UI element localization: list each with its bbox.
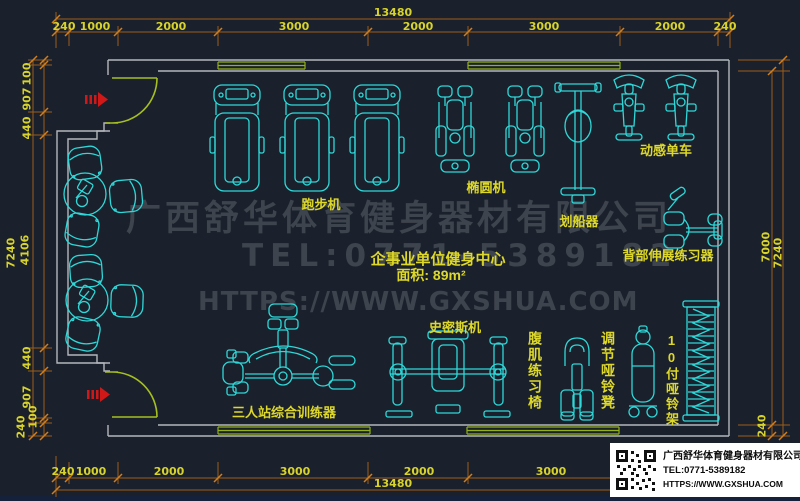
label-spin-bike: 动感单车	[640, 140, 692, 159]
dim-left-seg-6: 100	[27, 406, 40, 429]
title-block: 广西舒华体育健身器材有限公司 TEL:0771-5389182 HTTPS://…	[610, 443, 800, 497]
label-smith-machine: 史密斯机	[429, 317, 481, 336]
dim-bottom-seg-1: 1000	[76, 465, 107, 478]
multi-station-trainer	[223, 304, 355, 395]
dim-left-seg-7: 240	[15, 416, 28, 439]
dim-bottom-seg-0: 240	[52, 465, 75, 478]
dim-bottom-seg-2: 2000	[154, 465, 185, 478]
label-adj-dumbbell-bench: 调节哑铃凳	[598, 331, 618, 411]
titleblock-tel: TEL:0771-5389182	[663, 464, 800, 478]
rowing-machine	[555, 83, 601, 203]
label-rower: 划船器	[559, 211, 598, 230]
label-multi-station: 三人站综合训练器	[232, 402, 336, 421]
dim-top-seg-2: 2000	[156, 20, 187, 33]
spin-bikes	[614, 75, 696, 140]
label-dumbbell-rack: 10付哑铃架	[662, 333, 681, 427]
cad-canvas[interactable]: 广西舒华体育健身器材有限公司 TEL:0771-5389182 HTTPS://…	[0, 0, 800, 501]
ellipticals	[436, 86, 544, 172]
dim-left-seg-0: 100	[21, 63, 34, 86]
titleblock-company: 广西舒华体育健身器材有限公司	[663, 450, 800, 465]
dim-bottom-seg-3: 3000	[280, 465, 311, 478]
dim-top-seg-4: 2000	[403, 20, 434, 33]
dim-left-seg-3: 4106	[19, 235, 32, 266]
lounge-chairs-tables	[63, 145, 143, 353]
dim-top-seg-6: 2000	[655, 20, 686, 33]
smith-machine	[386, 331, 510, 417]
titleblock-website: HTTPS://WWW.GXSHUA.COM	[663, 478, 800, 490]
ab-bench	[561, 338, 593, 420]
adjustable-dumbbell-bench	[629, 326, 657, 417]
label-treadmill: 跑步机	[301, 194, 340, 213]
room-area: 面积: 89m²	[396, 265, 465, 285]
dim-left-seg-1: 907	[21, 88, 34, 111]
dim-left-total: 7240	[5, 238, 18, 269]
dim-top-seg-7: 240	[714, 20, 737, 33]
qr-code-icon	[614, 448, 658, 492]
back-extension-machine	[664, 186, 722, 248]
doors	[105, 78, 157, 417]
dim-bottom-total: 13480	[374, 477, 412, 490]
dim-right-wall: 240	[756, 415, 769, 438]
dim-top-seg-0: 240	[53, 20, 76, 33]
dim-right-total: 7240	[772, 238, 785, 269]
dim-left-seg-2: 440	[21, 117, 34, 140]
dim-left-seg-4: 440	[21, 347, 34, 370]
dim-top-total: 13480	[374, 6, 412, 19]
dim-top-seg-3: 3000	[279, 20, 310, 33]
dumbbell-rack	[683, 301, 719, 421]
dim-top-seg-5: 3000	[529, 20, 560, 33]
dim-top-seg-1: 1000	[80, 20, 111, 33]
label-elliptical: 椭圆机	[466, 177, 505, 196]
label-ab-bench: 腹肌练习椅	[525, 331, 545, 411]
label-back-extension: 背部伸展练习器	[622, 245, 713, 264]
treadmills	[210, 85, 404, 191]
dim-bottom-seg-5: 3000	[536, 465, 567, 478]
